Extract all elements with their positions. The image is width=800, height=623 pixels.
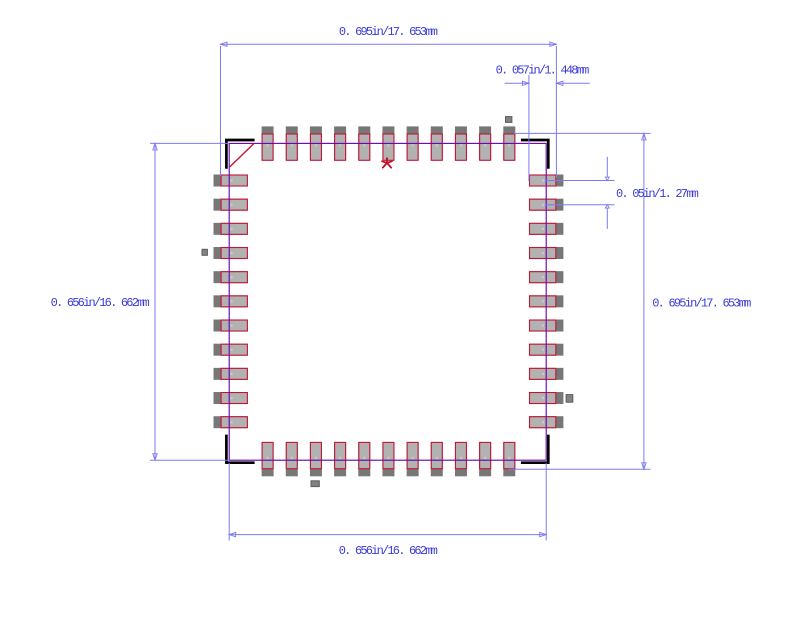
svg-text:0. 695in/17. 653mm: 0. 695in/17. 653mm [652,297,751,311]
svg-text:0. 656in/16. 662mm: 0. 656in/16. 662mm [51,296,150,310]
svg-text:0. 05in/1. 27mm: 0. 05in/1. 27mm [616,187,699,201]
svg-text:0. 695in/17. 653mm: 0. 695in/17. 653mm [339,25,438,39]
svg-text:0. 656in/16. 662mm: 0. 656in/16. 662mm [339,544,438,558]
svg-text:0. 057in/1. 448mm: 0. 057in/1. 448mm [496,64,589,78]
